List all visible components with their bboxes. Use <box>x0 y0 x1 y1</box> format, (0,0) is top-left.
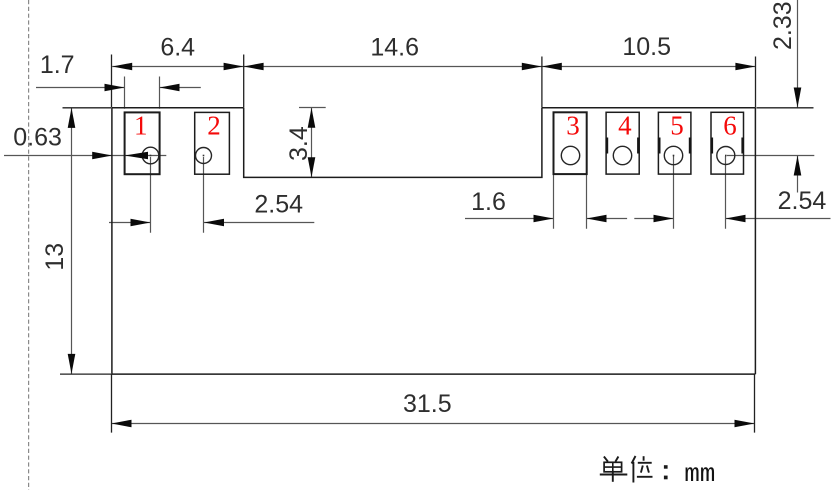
svg-text:4: 4 <box>618 110 632 140</box>
svg-text:0.63: 0.63 <box>13 123 62 151</box>
svg-text:6.4: 6.4 <box>160 33 195 61</box>
svg-text:14.6: 14.6 <box>370 34 419 62</box>
svg-text:31.5: 31.5 <box>403 390 452 418</box>
svg-text:2.54: 2.54 <box>778 187 827 215</box>
svg-text:3: 3 <box>566 110 580 140</box>
svg-text:10.5: 10.5 <box>622 33 671 61</box>
svg-text:2.33: 2.33 <box>769 1 797 50</box>
svg-text:13: 13 <box>41 243 69 271</box>
svg-text:5: 5 <box>670 110 684 140</box>
svg-text:3.4: 3.4 <box>285 126 313 161</box>
svg-text:1.7: 1.7 <box>40 51 75 79</box>
svg-text:1: 1 <box>134 110 148 140</box>
svg-text:6: 6 <box>723 110 737 140</box>
svg-text:mm: mm <box>684 459 715 489</box>
svg-text:1.6: 1.6 <box>471 188 506 216</box>
svg-text:2.54: 2.54 <box>254 191 303 219</box>
svg-text:2: 2 <box>207 110 221 140</box>
